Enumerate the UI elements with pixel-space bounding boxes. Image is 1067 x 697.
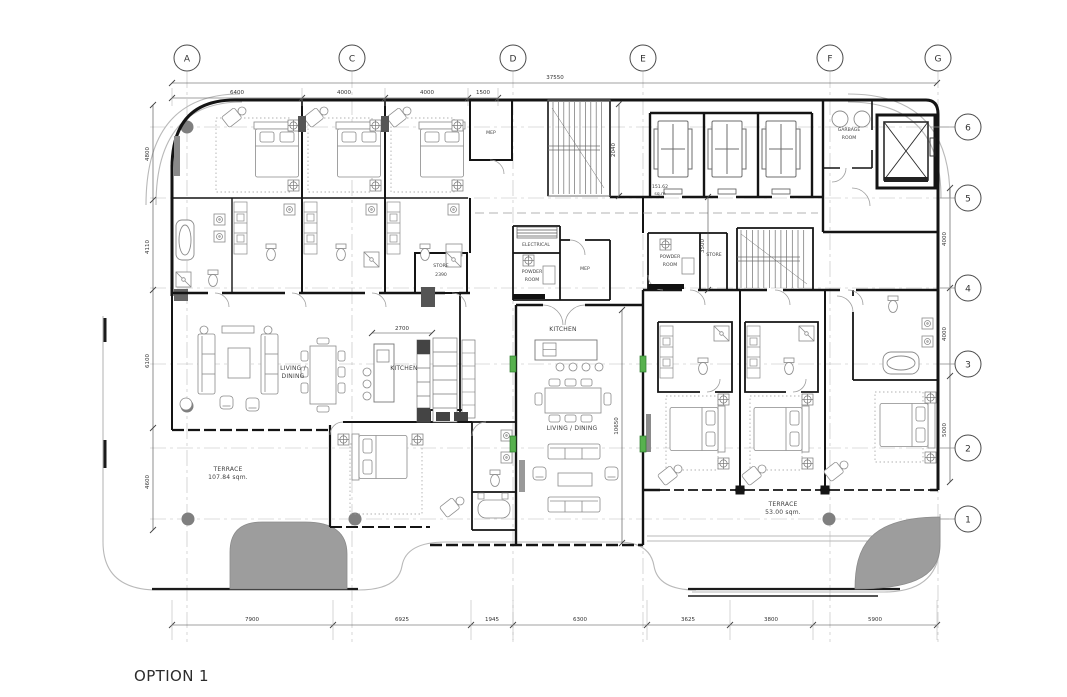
center-living — [519, 444, 618, 512]
dim-top-1: 6400 — [230, 90, 244, 96]
label-living-center: LIVING / DINING — [547, 425, 598, 432]
dim-top-2: 4000 — [337, 90, 351, 96]
dim-kitchen-island: 2700 — [395, 326, 409, 332]
svg-text:3: 3 — [965, 361, 971, 371]
dim-bottom-3: 1945 — [485, 617, 499, 623]
label-store-dim: 2390 — [435, 272, 447, 278]
label-terrace-right-2: 53.00 sqm. — [765, 509, 801, 516]
svg-text:C: C — [349, 55, 355, 65]
electrical-room — [517, 227, 557, 238]
svg-text:4: 4 — [965, 285, 971, 295]
dim-living-length: 10650 — [614, 417, 620, 435]
label-lobby-area-2: sq.m — [654, 192, 666, 197]
elevator-bank — [654, 121, 800, 194]
grid-bubble-1: 1 — [940, 506, 981, 532]
grid-bubble-A: A — [174, 45, 200, 71]
label-terrace-left-2: 107.84 sqm. — [208, 474, 248, 481]
label-lobby-area-1: 151.62 — [652, 184, 668, 190]
dim-lobby-depth: 3500 — [700, 239, 706, 253]
master-bathroom-left — [176, 214, 225, 287]
guest-bedroom — [338, 412, 468, 518]
dim-top-4: 1500 — [476, 90, 490, 96]
powder-room-left-fixtures — [513, 255, 555, 299]
bathroom-2 — [234, 202, 295, 261]
label-mep-center: MEP — [580, 266, 590, 272]
bedroom-top-3 — [381, 107, 465, 192]
dim-bottom-1: 7900 — [245, 617, 259, 623]
label-kitchen-center: KITCHEN — [549, 326, 576, 333]
center-bathroom — [478, 430, 512, 518]
grid-bubble-5: 5 — [940, 185, 981, 211]
label-electrical: ELECTRICAL — [522, 242, 550, 248]
stairs-top — [548, 100, 610, 196]
label-powder-right-1: POWDER — [660, 254, 681, 260]
floor-plan-sheet: 37550 6400 4000 4000 1500 7900 6925 1945… — [0, 0, 1067, 697]
floor-plan-drawing: 37550 6400 4000 4000 1500 7900 6925 1945… — [0, 0, 1067, 697]
label-living-left-1: LIVING / — [280, 365, 306, 372]
svg-text:E: E — [640, 55, 646, 65]
label-powder-left-2: ROOM — [525, 277, 539, 283]
service-elevator — [884, 122, 935, 182]
left-living-room — [180, 326, 278, 411]
garbage-room-fixtures — [832, 111, 870, 127]
grid-bubble-F: F — [817, 45, 843, 71]
svg-text:D: D — [510, 55, 517, 65]
grid-bubble-D: D — [500, 45, 526, 71]
dim-right-3: 5000 — [942, 423, 948, 437]
svg-text:F: F — [827, 55, 832, 65]
left-dining — [301, 338, 345, 412]
dim-left-1: 4800 — [145, 147, 151, 161]
plan-title: OPTION 1 — [134, 667, 209, 685]
dim-right-1: 4000 — [942, 232, 948, 246]
label-terrace-right-1: TERRACE — [768, 501, 798, 508]
right-bedroom-2 — [741, 326, 814, 486]
svg-text:A: A — [184, 55, 191, 65]
stairs-right — [737, 230, 807, 288]
label-store-1: STORE — [433, 263, 449, 269]
grid-bubble-3: 3 — [940, 351, 981, 377]
planter-left — [230, 522, 347, 589]
label-mep-top: MEP — [486, 130, 496, 136]
dim-bottom-2: 6925 — [395, 617, 409, 623]
center-kitchen — [535, 340, 603, 371]
label-powder-right-2: ROOM — [663, 262, 677, 268]
bedroom-top-2 — [298, 107, 382, 192]
svg-text:G: G — [935, 55, 942, 65]
dim-top-3: 4000 — [420, 90, 434, 96]
dim-right-2: 4000 — [942, 327, 948, 341]
label-living-left-2: DINING — [282, 373, 305, 380]
label-terrace-left-1: TERRACE — [213, 466, 243, 473]
dim-bottom-5: 3625 — [681, 617, 695, 623]
label-garbage-1: GARBAGE — [838, 127, 861, 133]
svg-text:5: 5 — [965, 195, 971, 205]
columns — [174, 121, 836, 526]
dim-overall: 37550 — [546, 75, 564, 81]
dim-stair-width: 2040 — [611, 143, 617, 157]
dim-left-3: 6100 — [145, 354, 151, 368]
grid-bubble-2: 2 — [940, 435, 981, 461]
right-master-bedroom — [823, 296, 936, 482]
dim-left-2: 4110 — [145, 240, 151, 254]
bedroom-top-1 — [174, 107, 300, 192]
grid-bubble-4: 4 — [940, 275, 981, 301]
bathroom-3 — [304, 202, 379, 267]
bathroom-4 — [387, 202, 461, 267]
label-kitchen-left: KITCHEN — [390, 365, 417, 372]
grid-bubble-G: G — [925, 45, 951, 71]
label-store-2: STORE — [706, 252, 722, 258]
grid-bubble-E: E — [630, 45, 656, 71]
center-dining — [535, 379, 611, 422]
dim-bottom-6: 3800 — [764, 617, 778, 623]
grid-bubble-C: C — [339, 45, 365, 71]
dim-bottom-4: 6300 — [573, 617, 587, 623]
dim-left-4: 4600 — [145, 475, 151, 489]
svg-text:2: 2 — [965, 445, 971, 455]
svg-text:1: 1 — [965, 516, 971, 526]
svg-text:6: 6 — [965, 124, 971, 134]
dim-bottom-7: 5900 — [868, 617, 882, 623]
label-powder-left-1: POWDER — [522, 269, 543, 275]
label-garbage-2: ROOM — [842, 135, 856, 141]
